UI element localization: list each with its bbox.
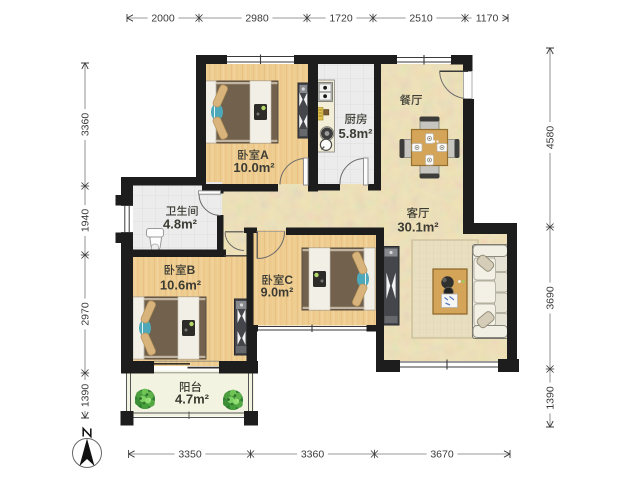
svg-text:3690: 3690 — [545, 286, 557, 310]
svg-text:2510: 2510 — [409, 13, 433, 25]
svg-text:3350: 3350 — [178, 449, 202, 461]
svg-text:4580: 4580 — [545, 126, 557, 150]
svg-text:3360: 3360 — [301, 449, 325, 461]
svg-text:3360: 3360 — [80, 113, 92, 137]
svg-text:10.6m²: 10.6m² — [160, 278, 202, 293]
svg-text:5.8m²: 5.8m² — [339, 126, 374, 141]
svg-text:4.8m²: 4.8m² — [163, 217, 198, 232]
svg-text:2980: 2980 — [245, 13, 269, 25]
svg-text:2970: 2970 — [80, 302, 92, 326]
svg-text:3670: 3670 — [430, 449, 454, 461]
svg-text:2000: 2000 — [151, 13, 175, 25]
svg-text:1390: 1390 — [80, 384, 92, 408]
svg-text:1940: 1940 — [80, 209, 92, 233]
svg-text:B: B — [187, 263, 196, 277]
svg-text:9.0m²: 9.0m² — [261, 286, 294, 300]
svg-text:1720: 1720 — [329, 13, 353, 25]
svg-text:10.0m²: 10.0m² — [233, 160, 275, 175]
svg-text:4.7m²: 4.7m² — [175, 392, 210, 407]
svg-text:1390: 1390 — [545, 386, 557, 410]
svg-text:30.1m²: 30.1m² — [397, 220, 439, 235]
svg-text:1170: 1170 — [476, 13, 499, 25]
